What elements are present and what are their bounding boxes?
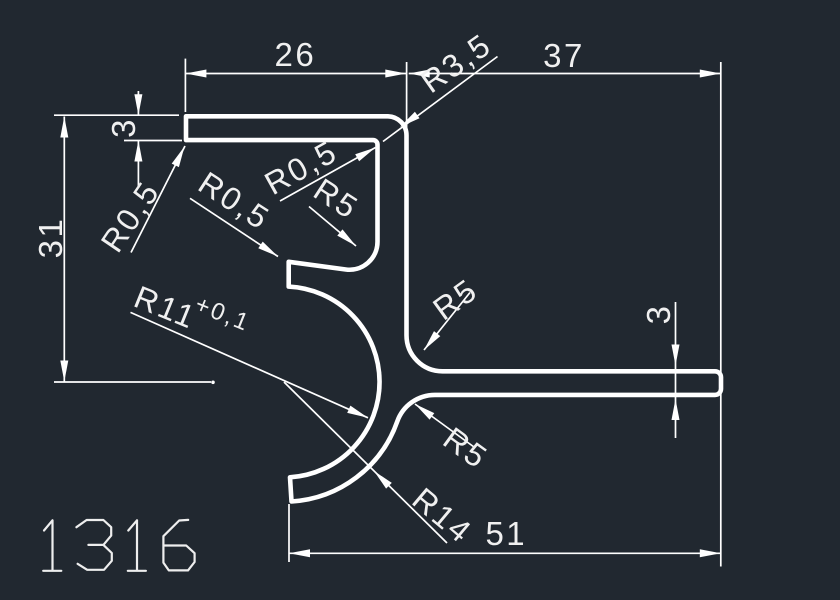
svg-text:37: 37 — [543, 37, 585, 74]
svg-text:31: 31 — [32, 217, 69, 259]
svg-text:26: 26 — [275, 36, 317, 73]
svg-text:3: 3 — [640, 304, 677, 325]
svg-text:51: 51 — [485, 515, 527, 552]
svg-text:3: 3 — [105, 117, 142, 138]
